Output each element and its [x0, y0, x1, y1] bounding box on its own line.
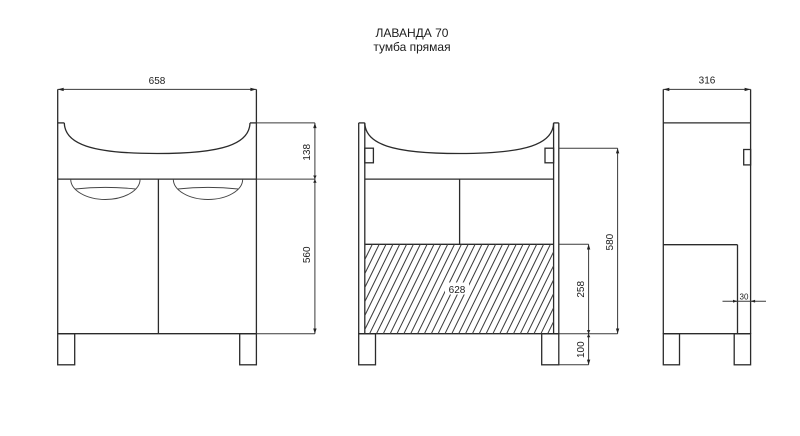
svg-text:138: 138: [302, 144, 313, 161]
svg-text:316: 316: [699, 76, 716, 87]
svg-text:30: 30: [740, 292, 749, 301]
svg-text:560: 560: [302, 246, 313, 263]
svg-text:100: 100: [576, 341, 587, 358]
svg-text:658: 658: [149, 76, 166, 87]
svg-text:258: 258: [576, 281, 587, 298]
svg-text:628: 628: [449, 285, 466, 296]
svg-text:580: 580: [605, 233, 616, 250]
